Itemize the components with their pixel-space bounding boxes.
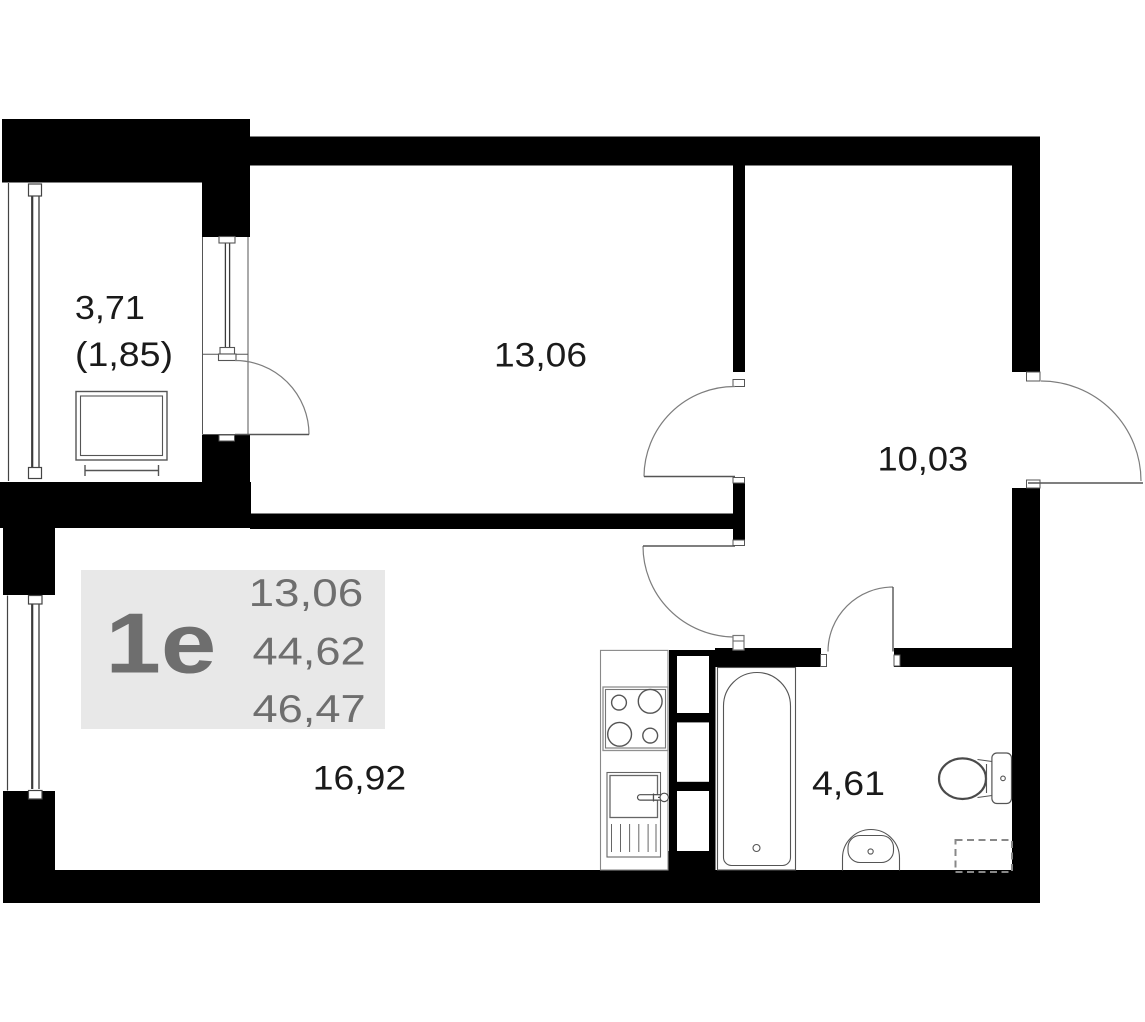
svg-text:44,62: 44,62 xyxy=(253,631,366,674)
svg-text:3,71: 3,71 xyxy=(75,290,145,327)
svg-text:4,61: 4,61 xyxy=(812,765,885,803)
svg-text:13,06: 13,06 xyxy=(249,572,364,615)
svg-text:1e: 1e xyxy=(106,597,217,692)
svg-text:(1,85): (1,85) xyxy=(75,336,173,374)
svg-text:10,03: 10,03 xyxy=(878,440,969,478)
svg-text:46,47: 46,47 xyxy=(253,688,366,731)
svg-text:16,92: 16,92 xyxy=(313,759,406,797)
svg-text:13,06: 13,06 xyxy=(494,337,587,375)
